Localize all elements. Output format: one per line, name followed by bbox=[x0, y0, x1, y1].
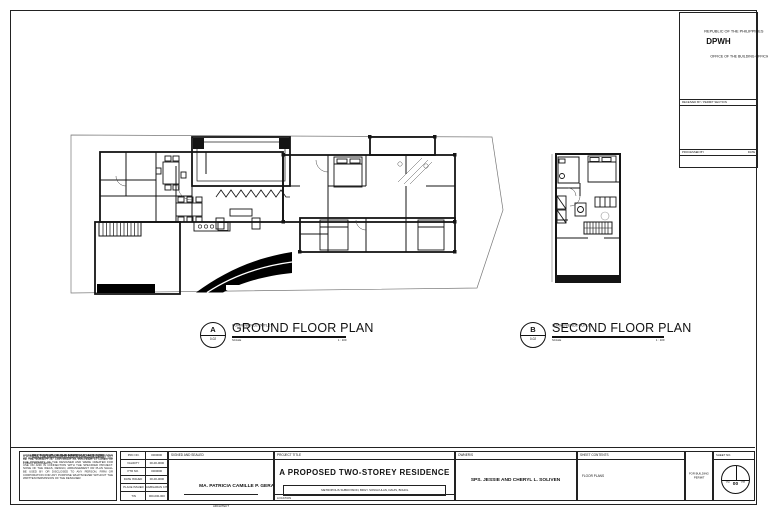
garage-pad bbox=[97, 284, 155, 293]
sheet-contents-box: SHEET CONTENTS FLOOR PLANS bbox=[577, 451, 685, 501]
prof-label: TIN bbox=[121, 492, 146, 500]
owners-box: OWNER/S SPS. JESSIE AND CHERYL L. SOLIVE… bbox=[455, 451, 577, 501]
prof-label: DATE ISSUED bbox=[121, 476, 146, 484]
signed-sealed-box: SIGNED AND SEALED MA. PATRICIA CAMILLE P… bbox=[168, 451, 274, 501]
agency-republic-text: REPUBLIC OF THE PHILIPPINES bbox=[704, 30, 763, 34]
prof-value: 0000000 bbox=[146, 452, 167, 460]
owners-name: SPS. JESSIE AND CHERYL L. SOLIVEN bbox=[456, 459, 576, 500]
furniture-2 bbox=[557, 156, 616, 223]
agency-title-block: REPUBLIC OF THE PHILIPPINES DPWH OFFICE … bbox=[679, 12, 758, 168]
professional-info-table: PRC NO. 0000000 VALIDITY 00-00-0000 PTR … bbox=[120, 451, 168, 501]
architect-role: ARCHITECT bbox=[169, 495, 273, 512]
ground-plan-title: GROUND FLOOR PLAN bbox=[232, 321, 374, 335]
second-plan-title: SECOND FLOOR PLAN bbox=[552, 321, 692, 335]
sheet-number-circle: 02 08 00 bbox=[721, 465, 750, 494]
prof-value: 00-00-0000 bbox=[146, 460, 167, 468]
columns bbox=[282, 135, 457, 254]
sheet-number-header: SHEET NO. bbox=[714, 452, 754, 460]
prof-label: PTR NO. bbox=[121, 468, 146, 476]
swimming-pool bbox=[192, 137, 290, 186]
sheet-contents-header: SHEET CONTENTS bbox=[578, 452, 684, 460]
agency-received-row: RECEIVED BY / PERMIT SECTION DATE bbox=[680, 99, 757, 106]
copyright-body: HOWEVER, ALL IDEAS, ARRANGEMENT AND DESI… bbox=[23, 454, 113, 480]
copyright-notice-box: SECTION 35 OF THE REPUBLIC ACT 8293 A WO… bbox=[19, 451, 117, 501]
second-floor-plan-drawing bbox=[548, 150, 632, 294]
prof-value: 00-00-0000 bbox=[146, 476, 167, 484]
second-floor-plan-label: B 0-02 CONVENIENCE OUTLET SECOND FLOOR P… bbox=[518, 312, 758, 354]
scale-value: 1 : 100 bbox=[655, 339, 664, 342]
bottom-title-block: SECTION 35 OF THE REPUBLIC ACT 8293 A WO… bbox=[10, 447, 755, 505]
scale-label: SCALE bbox=[232, 339, 241, 342]
second-plan-marker: B 0-02 bbox=[520, 322, 546, 348]
scale-label: SCALE bbox=[552, 339, 561, 342]
ground-floor-plan-drawing bbox=[66, 126, 510, 302]
agency-received-label: RECEIVED BY / PERMIT SECTION bbox=[682, 101, 727, 104]
architect-name: MA. PATRICIA CAMILLE P. GERARDINO bbox=[169, 475, 273, 493]
prof-value: 0000000 bbox=[146, 468, 167, 476]
scale-value: 1 : 100 bbox=[337, 339, 346, 342]
drawing-sheet: REPUBLIC OF THE PHILIPPINES DPWH OFFICE … bbox=[0, 0, 768, 512]
driveway bbox=[196, 252, 292, 293]
project-title-box: PROJECT TITLE A PROPOSED TWO-STOREY RESI… bbox=[274, 451, 455, 501]
agency-processed-date-label: DATE bbox=[748, 151, 755, 154]
project-header: PROJECT TITLE bbox=[275, 452, 454, 460]
stairs bbox=[99, 222, 141, 236]
prof-value: TAGBILARAN CITY bbox=[146, 484, 167, 492]
marker-ref: 0-02 bbox=[201, 328, 225, 346]
prof-label: PRC NO. bbox=[121, 452, 146, 460]
prof-label: PLACE ISSUED bbox=[121, 484, 146, 492]
ground-plan-marker: A 0-02 bbox=[200, 322, 226, 348]
signed-header: SIGNED AND SEALED bbox=[169, 452, 273, 460]
sheet-number-box: SHEET NO. 02 08 00 bbox=[713, 451, 755, 501]
sheet-number-bottom: 00 bbox=[722, 473, 749, 491]
balcony-edge bbox=[556, 275, 620, 282]
marker-ref: 0-02 bbox=[521, 328, 545, 346]
bathroom-hatch bbox=[398, 158, 432, 184]
permit-purpose-box: FOR BUILDING PERMIT bbox=[685, 451, 713, 501]
prof-label: VALIDITY bbox=[121, 460, 146, 468]
ground-scale-row: SCALE 1 : 100 bbox=[232, 337, 346, 344]
permit-line2: PERMIT bbox=[686, 476, 712, 480]
second-scale-row: SCALE 1 : 100 bbox=[552, 337, 664, 344]
project-title: A PROPOSED TWO-STOREY RESIDENCE bbox=[275, 460, 454, 484]
agency-office-text: OFFICE OF THE BUILDING OFFICIAL bbox=[710, 55, 768, 59]
agency-processed-row: PROCESSED BY DATE bbox=[680, 149, 757, 156]
stairs-2 bbox=[584, 222, 612, 234]
ground-floor-plan-label: A 0-02 CONVENIENCE OUTLET GROUND FLOOR P… bbox=[198, 312, 438, 354]
interior-partitions bbox=[100, 152, 455, 252]
prof-value: 000-000-000 bbox=[146, 492, 167, 500]
sheet-contents-value: FLOOR PLANS bbox=[582, 465, 631, 483]
agency-office-line: OFFICE OF THE BUILDING OFFICIAL bbox=[680, 45, 757, 63]
agency-republic-line: REPUBLIC OF THE PHILIPPINES bbox=[680, 20, 757, 38]
project-location-row: LOCATION bbox=[275, 494, 454, 502]
agency-processed-label: PROCESSED BY bbox=[682, 151, 704, 154]
